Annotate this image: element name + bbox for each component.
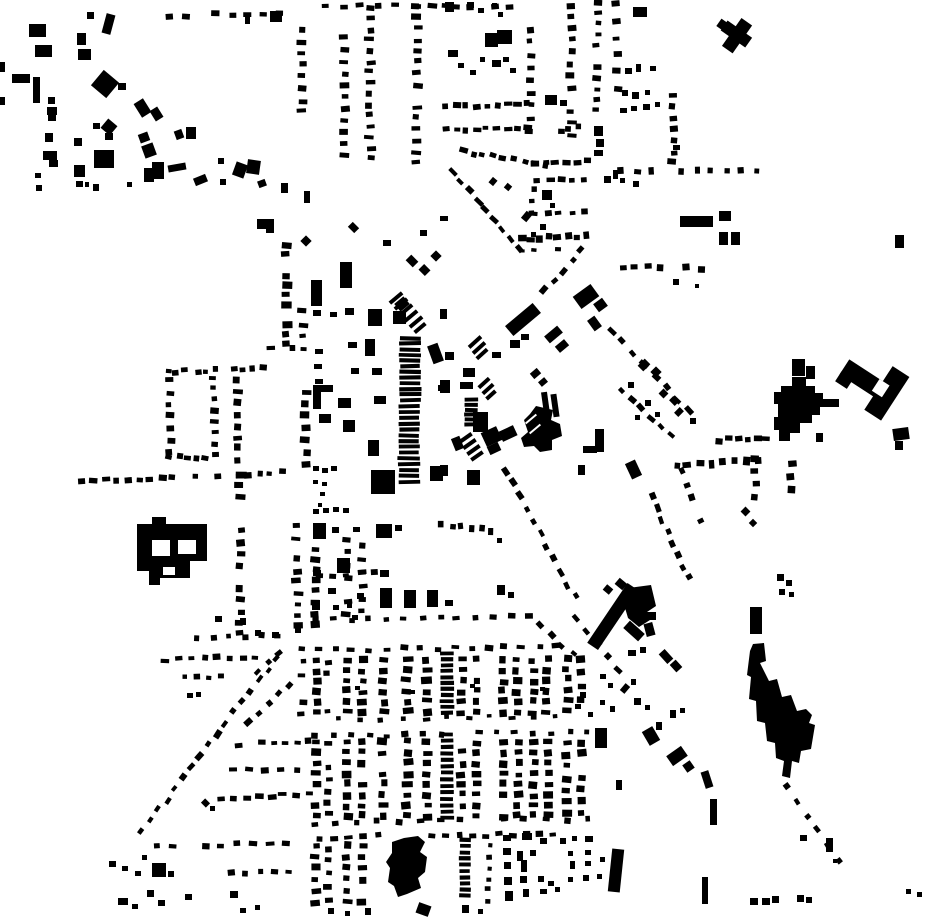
figure-ground-canvas xyxy=(0,0,930,924)
map-viewport xyxy=(0,0,930,924)
